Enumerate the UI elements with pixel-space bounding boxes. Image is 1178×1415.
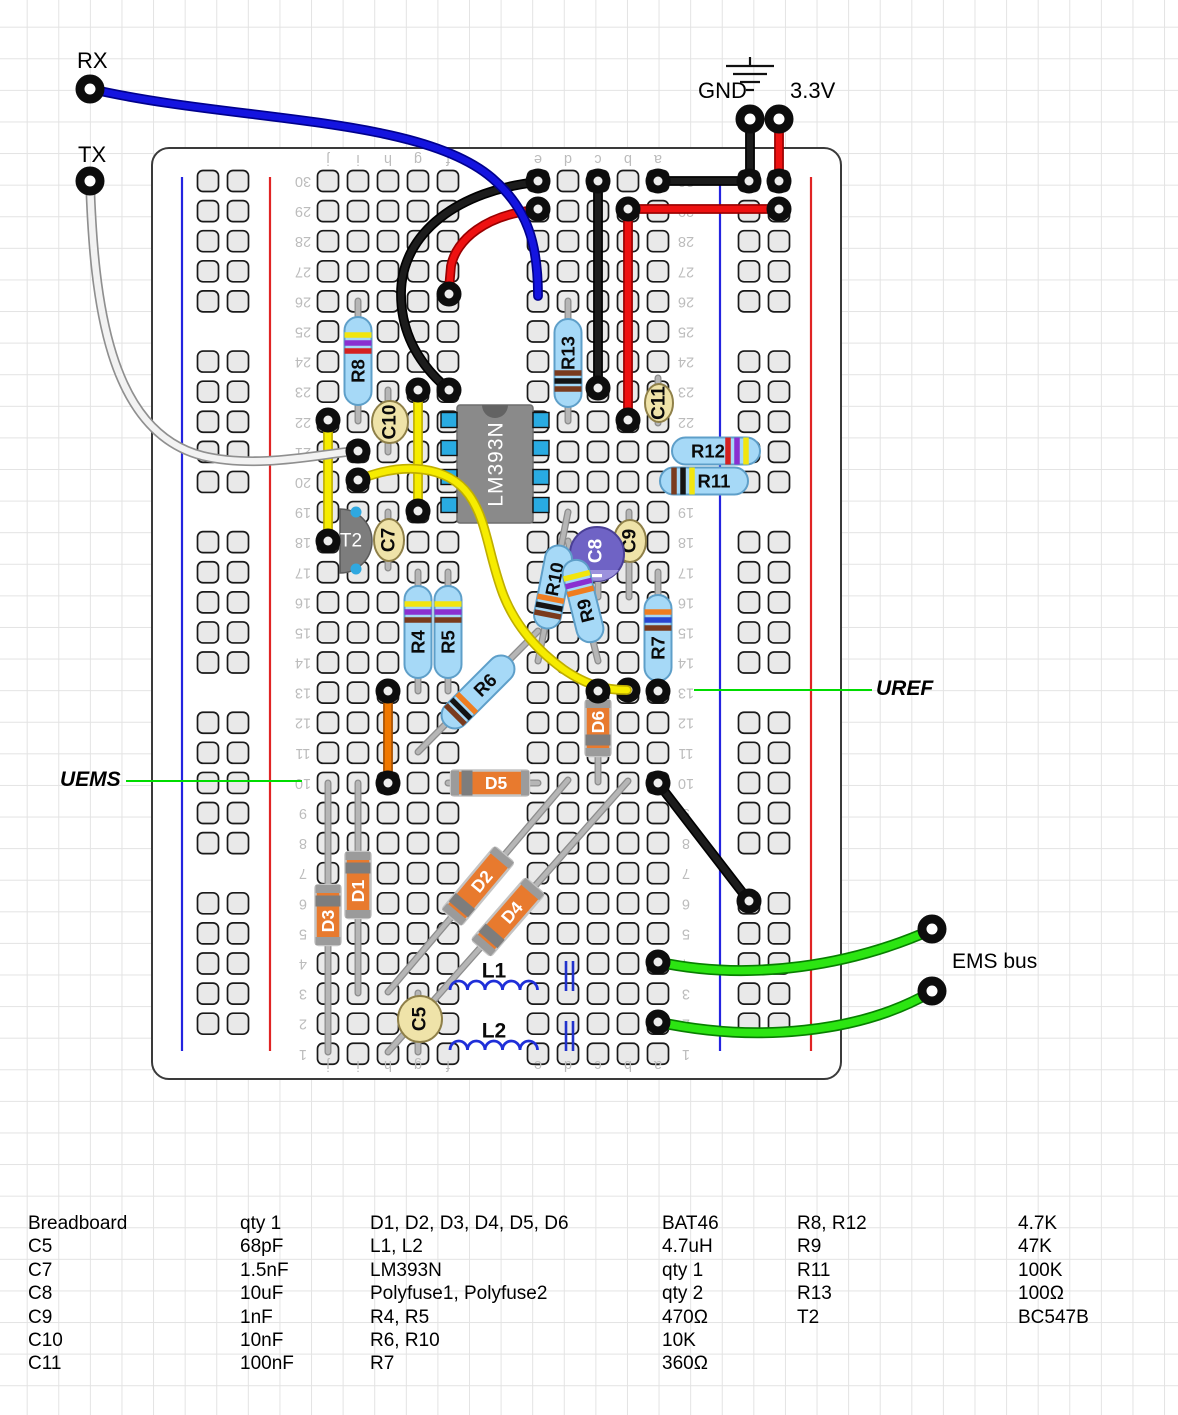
- part-value: 100Ω: [1018, 1282, 1064, 1305]
- breadboard-diagram: jjiihhggffeeddccbbaa11223344556677889910…: [0, 0, 1178, 1180]
- svg-text:30: 30: [295, 173, 311, 189]
- svg-text:LM393N: LM393N: [485, 421, 508, 506]
- svg-text:27: 27: [295, 263, 311, 279]
- svg-text:20: 20: [295, 474, 311, 490]
- svg-text:d: d: [564, 151, 572, 167]
- label-ems-bus: EMS bus: [952, 951, 1037, 972]
- svg-text:g: g: [414, 151, 422, 167]
- svg-text:8: 8: [682, 835, 690, 851]
- part-value: qty 1: [662, 1259, 703, 1282]
- svg-text:22: 22: [295, 414, 311, 430]
- svg-text:26: 26: [678, 293, 694, 309]
- parts-row: C11 100nF R7 360Ω: [0, 1352, 1178, 1375]
- part-value: 10uF: [240, 1282, 283, 1305]
- svg-text:C5: C5: [410, 1006, 431, 1031]
- pin-3v3[interactable]: [769, 109, 789, 129]
- svg-text:11: 11: [678, 745, 693, 761]
- pin-rx[interactable]: [80, 79, 100, 99]
- svg-text:b: b: [624, 151, 632, 167]
- svg-text:25: 25: [678, 323, 694, 339]
- svg-text:15: 15: [295, 624, 311, 640]
- svg-text:h: h: [384, 1057, 392, 1073]
- label-uems: UEMS: [60, 769, 121, 790]
- component-c11[interactable]: C11: [645, 384, 673, 422]
- parts-list: Breadboard qty 1 D1, D2, D3, D4, D5, D6 …: [0, 1212, 1178, 1376]
- label-3v3: 3.3V: [790, 80, 835, 102]
- part-value: qty 1: [240, 1212, 281, 1235]
- component-r8[interactable]: R8: [345, 317, 372, 405]
- parts-row: C9 1nF R4, R5 470Ω T2 BC547B: [0, 1306, 1178, 1329]
- component-r12[interactable]: R12: [672, 438, 760, 465]
- component-r7[interactable]: R7: [645, 595, 672, 681]
- part-item: Breadboard: [28, 1212, 127, 1235]
- part-item: C7: [28, 1259, 52, 1282]
- svg-text:14: 14: [295, 655, 311, 671]
- part-item: R6, R10: [370, 1329, 440, 1352]
- component-d6[interactable]: D6: [586, 700, 611, 756]
- part-value: 47K: [1018, 1235, 1052, 1258]
- svg-text:D5: D5: [485, 773, 508, 793]
- part-item: C5: [28, 1235, 52, 1258]
- svg-text:13: 13: [678, 685, 694, 701]
- svg-text:1: 1: [682, 1046, 690, 1062]
- part-item: C9: [28, 1306, 52, 1329]
- part-value: 1nF: [240, 1306, 273, 1329]
- svg-text:R7: R7: [648, 636, 669, 660]
- svg-text:18: 18: [678, 534, 694, 550]
- svg-text:C8: C8: [586, 539, 607, 563]
- part-value: 4.7K: [1018, 1212, 1057, 1235]
- label-uref: UREF: [876, 678, 933, 699]
- svg-text:1: 1: [299, 1046, 307, 1062]
- svg-text:7: 7: [682, 865, 690, 881]
- svg-text:24: 24: [295, 354, 311, 370]
- svg-text:7: 7: [299, 865, 307, 881]
- part-item: Polyfuse1, Polyfuse2: [370, 1282, 547, 1305]
- component-c10[interactable]: C10: [372, 401, 408, 443]
- part-value: 100nF: [240, 1352, 294, 1375]
- part-value: 100K: [1018, 1259, 1062, 1282]
- fritzing-breadboard-canvas: jjiihhggffeeddccbbaa11223344556677889910…: [0, 0, 1178, 1415]
- svg-text:D3: D3: [318, 910, 338, 933]
- svg-text:25: 25: [295, 323, 311, 339]
- svg-text:L2: L2: [482, 1020, 507, 1043]
- part-value: BC547B: [1018, 1306, 1089, 1329]
- svg-text:28: 28: [295, 233, 311, 249]
- part-value: 10K: [662, 1329, 696, 1352]
- pin-tx[interactable]: [80, 171, 100, 191]
- svg-text:8: 8: [299, 835, 307, 851]
- svg-text:26: 26: [295, 293, 311, 309]
- svg-text:h: h: [384, 151, 392, 167]
- parts-row: C8 10uF Polyfuse1, Polyfuse2 qty 2 R13 1…: [0, 1282, 1178, 1305]
- svg-text:6: 6: [299, 895, 307, 911]
- svg-text:a: a: [653, 151, 662, 167]
- svg-text:22: 22: [678, 414, 694, 430]
- svg-text:D1: D1: [348, 880, 368, 903]
- part-value: 360Ω: [662, 1352, 708, 1375]
- svg-text:R12: R12: [691, 441, 725, 462]
- svg-text:C10: C10: [380, 405, 401, 440]
- svg-text:11: 11: [295, 745, 310, 761]
- part-item: LM393N: [370, 1259, 442, 1282]
- label-tx: TX: [78, 144, 106, 166]
- svg-text:3: 3: [682, 986, 690, 1002]
- component-r4[interactable]: R4: [405, 586, 432, 678]
- svg-text:17: 17: [295, 564, 311, 580]
- part-item: R8, R12: [797, 1212, 867, 1235]
- svg-text:29: 29: [295, 203, 311, 219]
- part-item: C8: [28, 1282, 52, 1305]
- part-item: T2: [797, 1306, 819, 1329]
- svg-text:D6: D6: [588, 711, 608, 734]
- component-r5[interactable]: R5: [435, 586, 462, 678]
- svg-text:i: i: [356, 151, 359, 167]
- svg-text:28: 28: [678, 233, 694, 249]
- component-c5[interactable]: C5: [398, 996, 442, 1042]
- component-d1[interactable]: D1: [346, 852, 371, 918]
- part-item: L1, L2: [370, 1235, 423, 1258]
- part-value: 470Ω: [662, 1306, 708, 1329]
- svg-text:i: i: [356, 1057, 359, 1073]
- parts-row: C5 68pF L1, L2 4.7uH R9 47K: [0, 1235, 1178, 1258]
- svg-text:b: b: [624, 1057, 632, 1073]
- parts-row: C10 10nF R6, R10 10K: [0, 1329, 1178, 1352]
- svg-text:15: 15: [678, 624, 694, 640]
- pin-gnd[interactable]: [740, 109, 760, 129]
- svg-text:14: 14: [678, 655, 694, 671]
- svg-text:R4: R4: [408, 629, 429, 653]
- component-d3[interactable]: D3: [316, 885, 341, 945]
- svg-text:j: j: [326, 151, 330, 167]
- part-value: 68pF: [240, 1235, 283, 1258]
- part-item: D1, D2, D3, D4, D5, D6: [370, 1212, 569, 1235]
- part-item: C11: [28, 1352, 61, 1375]
- svg-text:10: 10: [295, 775, 311, 791]
- svg-text:g: g: [414, 1057, 422, 1073]
- part-item: C10: [28, 1329, 63, 1352]
- svg-text:16: 16: [295, 594, 311, 610]
- parts-row: C7 1.5nF LM393N qty 1 R11 100K: [0, 1259, 1178, 1282]
- part-value: 10nF: [240, 1329, 283, 1352]
- pin-ems-bus-1[interactable]: [922, 919, 942, 939]
- svg-text:c: c: [594, 1057, 601, 1073]
- svg-text:3: 3: [299, 986, 307, 1002]
- part-value: 4.7uH: [662, 1235, 713, 1258]
- svg-text:e: e: [534, 151, 542, 167]
- svg-text:e: e: [534, 1057, 542, 1073]
- component-lm393n[interactable]: LM393N: [441, 405, 549, 523]
- svg-text:16: 16: [678, 594, 694, 610]
- pin-ems-bus-2[interactable]: [922, 981, 942, 1001]
- component-r13[interactable]: R13: [555, 319, 582, 407]
- part-item: R13: [797, 1282, 832, 1305]
- svg-text:R11: R11: [698, 471, 731, 492]
- svg-text:5: 5: [299, 925, 307, 941]
- svg-text:a: a: [653, 1057, 662, 1073]
- svg-text:5: 5: [682, 925, 690, 941]
- part-item: R9: [797, 1235, 821, 1258]
- svg-text:T2: T2: [340, 531, 362, 552]
- svg-text:R8: R8: [348, 359, 369, 383]
- svg-text:6: 6: [682, 895, 690, 911]
- component-c7[interactable]: C7: [374, 519, 404, 561]
- part-value: 1.5nF: [240, 1259, 289, 1282]
- part-value: qty 2: [662, 1282, 703, 1305]
- svg-text:L1: L1: [482, 960, 507, 983]
- part-value: BAT46: [662, 1212, 719, 1235]
- svg-text:R13: R13: [558, 336, 579, 370]
- component-r11[interactable]: R11: [660, 468, 748, 495]
- label-rx: RX: [77, 50, 108, 72]
- part-item: R4, R5: [370, 1306, 429, 1329]
- parts-row: Breadboard qty 1 D1, D2, D3, D4, D5, D6 …: [0, 1212, 1178, 1235]
- svg-text:13: 13: [295, 685, 311, 701]
- svg-text:19: 19: [295, 504, 311, 520]
- svg-text:d: d: [564, 1057, 572, 1073]
- svg-text:23: 23: [295, 384, 311, 400]
- part-item: R7: [370, 1352, 394, 1375]
- svg-text:R5: R5: [438, 630, 459, 654]
- svg-text:C11: C11: [649, 386, 670, 420]
- svg-text:27: 27: [678, 263, 694, 279]
- svg-text:j: j: [326, 1057, 330, 1073]
- label-gnd: GND: [698, 80, 747, 102]
- svg-text:12: 12: [678, 715, 694, 731]
- svg-text:17: 17: [678, 564, 694, 580]
- svg-text:4: 4: [299, 955, 307, 971]
- svg-text:23: 23: [678, 384, 694, 400]
- svg-text:12: 12: [295, 715, 311, 731]
- svg-text:2: 2: [299, 1016, 307, 1032]
- svg-text:18: 18: [295, 534, 311, 550]
- svg-text:24: 24: [678, 354, 694, 370]
- part-item: R11: [797, 1259, 830, 1282]
- svg-text:C7: C7: [379, 528, 400, 552]
- svg-text:c: c: [594, 151, 601, 167]
- component-d5[interactable]: D5: [451, 771, 529, 796]
- svg-text:9: 9: [299, 805, 307, 821]
- svg-text:10: 10: [678, 775, 694, 791]
- svg-text:19: 19: [678, 504, 694, 520]
